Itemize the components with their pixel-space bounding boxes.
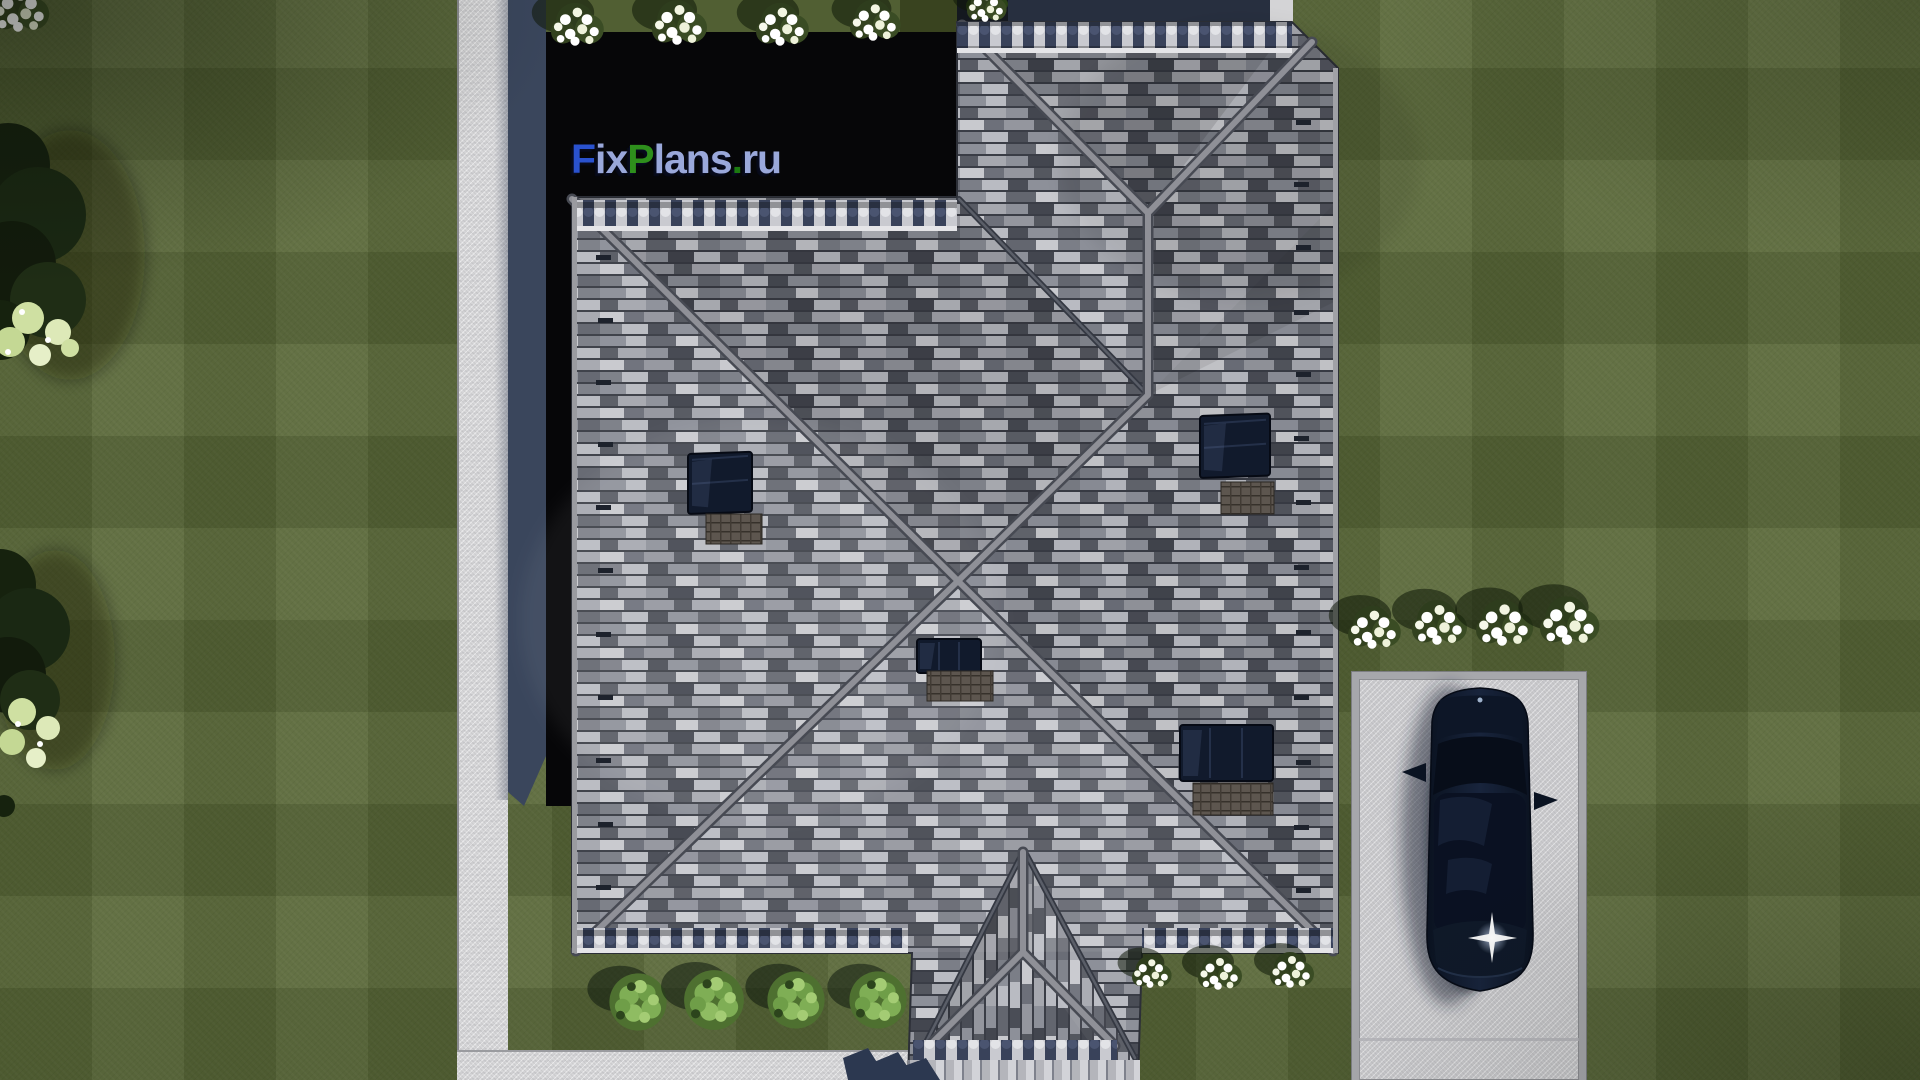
aerial-render-stage: FixPlans.ru bbox=[0, 0, 1920, 1080]
left-fascia bbox=[572, 197, 577, 953]
roof-panel-4 bbox=[1193, 783, 1273, 815]
flower-bed-right bbox=[1329, 584, 1600, 649]
top-right-concrete-patch bbox=[1270, 0, 1293, 22]
bush-row-bottom bbox=[587, 962, 906, 1031]
watermark-text: FixPlans.ru bbox=[571, 139, 781, 181]
watermark-letter: . bbox=[732, 136, 742, 182]
skylight-4 bbox=[1180, 725, 1273, 781]
roof-panel-3 bbox=[927, 671, 993, 701]
roof-panel-1 bbox=[706, 514, 762, 544]
watermark-letter: lans bbox=[654, 136, 732, 182]
tree-left-lower bbox=[0, 549, 115, 817]
watermark-letter: ru bbox=[742, 136, 781, 182]
skylight-1 bbox=[688, 452, 752, 514]
skylight-3 bbox=[917, 639, 981, 673]
car-mirror-right bbox=[1534, 792, 1558, 810]
flower-corner-topleft bbox=[0, 0, 49, 32]
flower-bed-bottom bbox=[1118, 943, 1314, 990]
watermark-letter: F bbox=[571, 136, 595, 182]
scene-graphics bbox=[0, 0, 1920, 1080]
right-fascia bbox=[1333, 68, 1338, 953]
tree-left-upper bbox=[0, 123, 145, 380]
watermark-letter: P bbox=[627, 136, 653, 182]
watermark-letter: ix bbox=[595, 136, 627, 182]
roof-panel-2 bbox=[1221, 482, 1274, 514]
car-antenna bbox=[1478, 698, 1483, 703]
skylight-2 bbox=[1200, 414, 1270, 478]
top-navy-band bbox=[1008, 0, 1270, 22]
car bbox=[1401, 685, 1558, 1005]
